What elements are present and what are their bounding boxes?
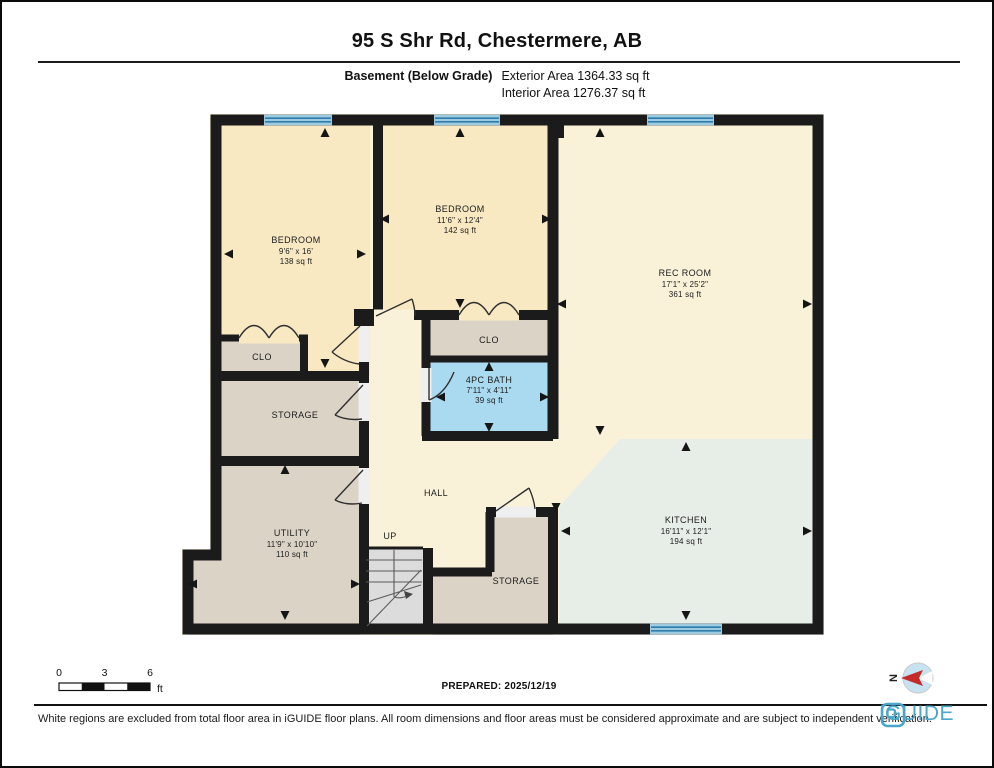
window-bottom xyxy=(650,624,722,635)
floorplan-drawing: BEDROOM 9'6" x 16' 138 sq ft BEDROOM 11'… xyxy=(2,2,994,768)
label-bedroom1-dims: 9'6" x 16' xyxy=(279,247,313,256)
wall-stub-corridor xyxy=(354,309,374,326)
label-utility-name: UTILITY xyxy=(274,528,310,538)
label-utility-area: 110 sq ft xyxy=(276,550,308,559)
label-clo-right: CLO xyxy=(479,335,499,345)
window-top-1 xyxy=(264,115,332,126)
scale-tick-0: 0 xyxy=(56,667,62,679)
iguide-logo-icon xyxy=(880,702,906,728)
label-storage-upper: STORAGE xyxy=(272,410,319,420)
wall-stub-rec-corner xyxy=(548,120,564,138)
scale-tick-3: 3 xyxy=(102,667,108,679)
label-bedroom1-area: 138 sq ft xyxy=(280,257,313,266)
window-top-2 xyxy=(434,115,500,126)
label-storage-lower: STORAGE xyxy=(493,576,540,586)
label-utility-dims: 11'9" x 10'10" xyxy=(267,540,318,549)
label-bedroom2-dims: 11'6" x 12'4" xyxy=(437,216,483,225)
iguide-brand: iGUIDE xyxy=(880,702,954,726)
footer-disclaimer: White regions are excluded from total fl… xyxy=(38,713,932,725)
label-clo-left: CLO xyxy=(252,352,272,362)
label-bath-name: 4PC BATH xyxy=(466,375,513,385)
compass: N xyxy=(888,663,933,693)
floorplan-page: 95 S Shr Rd, Chestermere, AB Basement (B… xyxy=(0,0,994,768)
label-bath-dims: 7'11" x 4'11" xyxy=(466,386,511,395)
label-up: UP xyxy=(383,531,396,541)
scale-unit: ft xyxy=(157,683,163,695)
scale-bar: 0 3 6 ft xyxy=(56,667,163,695)
compass-north-label: N xyxy=(888,674,900,682)
window-top-3 xyxy=(647,115,714,126)
prepared-date: PREPARED: 2025/12/19 xyxy=(442,681,557,692)
footer-divider xyxy=(34,704,987,706)
label-rec-area: 361 sq ft xyxy=(669,290,702,299)
label-hall: HALL xyxy=(424,488,448,498)
label-bath-area: 39 sq ft xyxy=(475,396,503,405)
label-bedroom2-name: BEDROOM xyxy=(435,204,484,214)
label-kitchen-dims: 16'11" x 12'1" xyxy=(661,527,712,536)
label-kitchen-name: KITCHEN xyxy=(665,515,707,525)
label-rec-name: REC ROOM xyxy=(659,268,712,278)
scale-tick-6: 6 xyxy=(147,667,153,679)
label-kitchen-area: 194 sq ft xyxy=(670,537,703,546)
label-bedroom1-name: BEDROOM xyxy=(271,235,320,245)
label-bedroom2-area: 142 sq ft xyxy=(444,226,477,235)
label-rec-dims: 17'1" x 25'2" xyxy=(662,280,708,289)
